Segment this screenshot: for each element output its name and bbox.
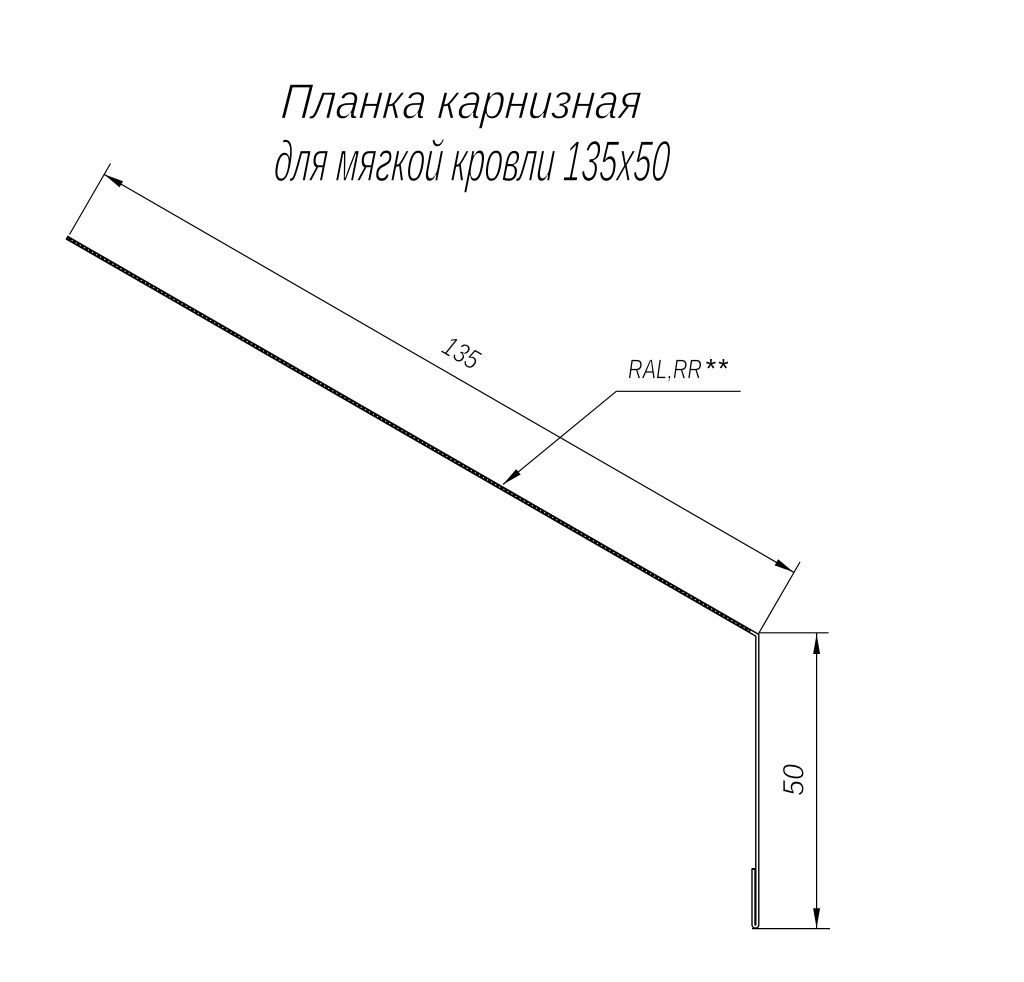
- svg-text:**: **: [705, 354, 730, 384]
- svg-text:для мягкой кровли 135х50: для мягкой кровли 135х50: [272, 129, 673, 194]
- svg-text:Планка карнизная: Планка карнизная: [279, 73, 644, 129]
- svg-text:50: 50: [778, 763, 811, 796]
- svg-text:RAL,RR: RAL,RR: [628, 354, 702, 385]
